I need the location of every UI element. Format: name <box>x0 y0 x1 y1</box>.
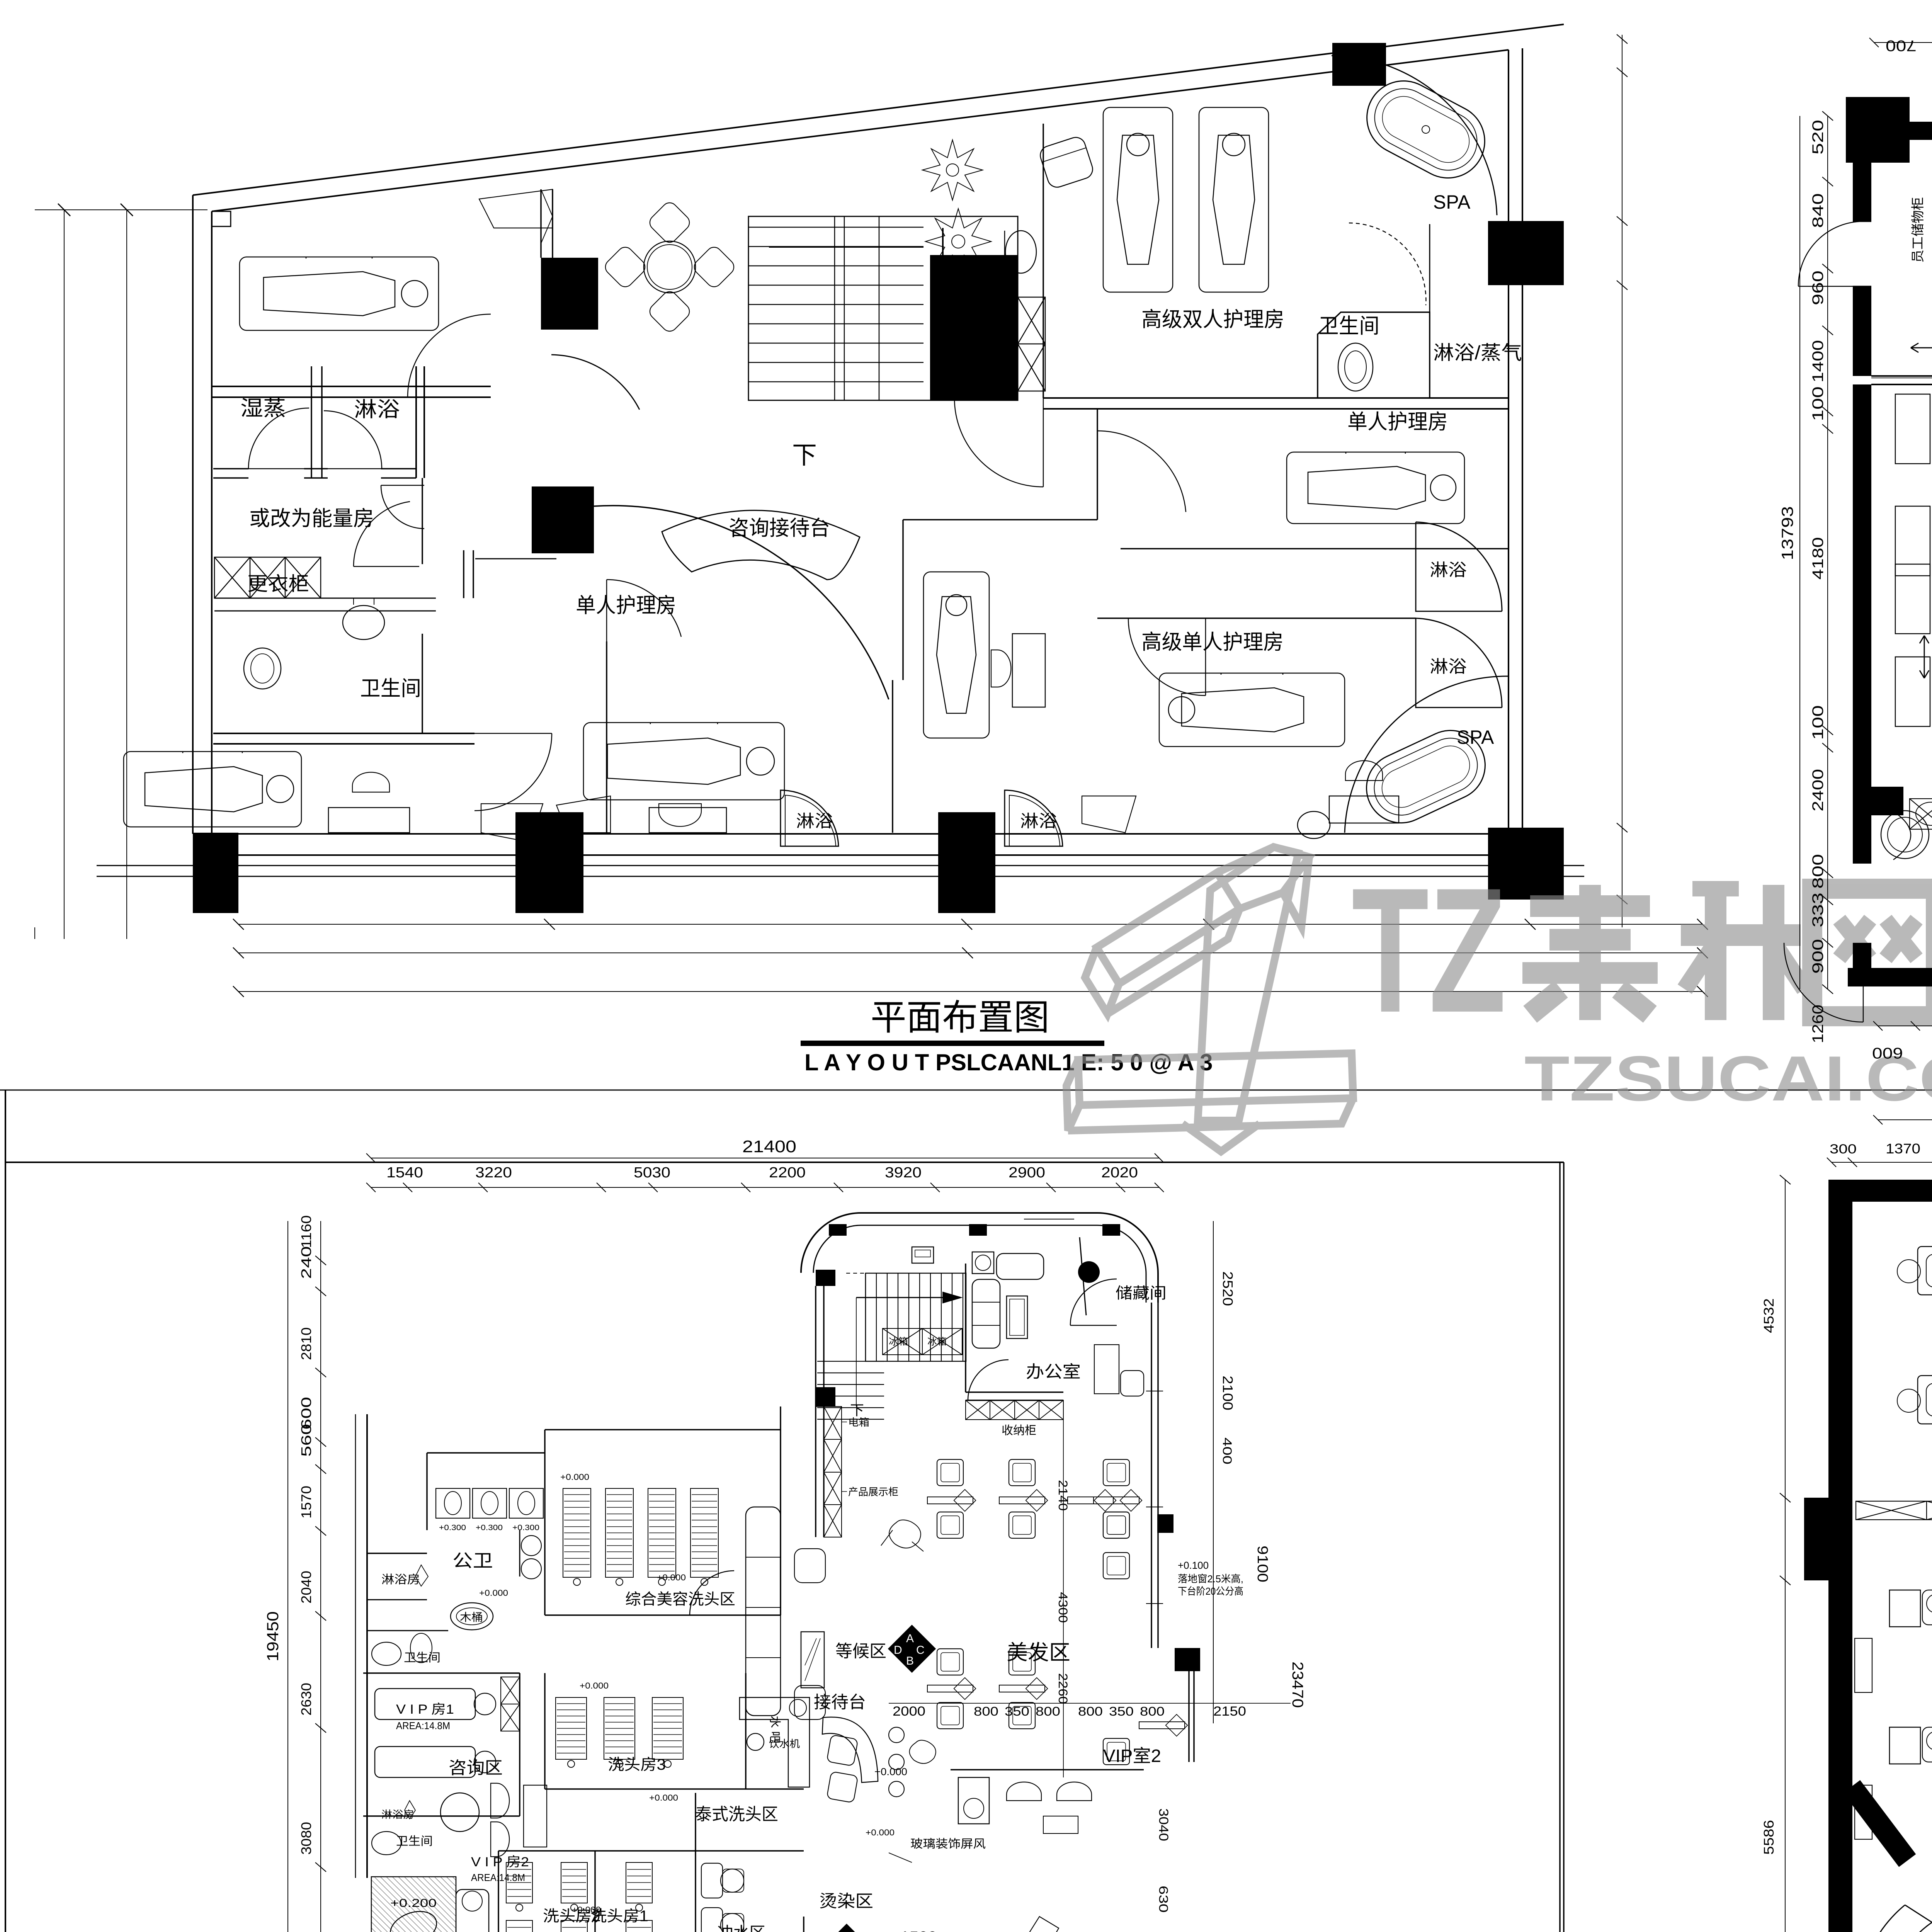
svg-text:3920: 3920 <box>885 1165 922 1181</box>
svg-text:700: 700 <box>1886 37 1917 54</box>
svg-text:淋浴房: 淋浴房 <box>381 1573 420 1586</box>
svg-text:泰式洗头区: 泰式洗头区 <box>695 1805 778 1824</box>
svg-text:淋浴: 淋浴 <box>1430 561 1467 580</box>
svg-text:350: 350 <box>1109 1704 1134 1718</box>
svg-text:350: 350 <box>1005 1704 1029 1718</box>
svg-text:+0.000: +0.000 <box>580 1681 609 1690</box>
svg-text:SPA: SPA <box>1457 726 1494 748</box>
svg-text:淋浴: 淋浴 <box>1430 657 1467 676</box>
svg-text:A: A <box>842 1930 849 1932</box>
svg-text:9100: 9100 <box>1254 1546 1270 1582</box>
svg-text:100: 100 <box>1810 705 1827 740</box>
svg-text:电箱: 电箱 <box>848 1417 869 1428</box>
svg-text:淋浴: 淋浴 <box>354 398 400 421</box>
svg-text:21400: 21400 <box>742 1137 796 1156</box>
svg-text:吧: 吧 <box>768 1731 781 1743</box>
svg-text:840: 840 <box>1810 193 1827 228</box>
svg-text:+0.300: +0.300 <box>512 1524 539 1532</box>
svg-text:或改为能量房: 或改为能量房 <box>249 507 374 530</box>
svg-text:下: 下 <box>792 441 817 469</box>
svg-text:5030: 5030 <box>634 1165 670 1181</box>
svg-text:木桶: 木桶 <box>460 1611 483 1623</box>
svg-text:2140: 2140 <box>1056 1480 1070 1511</box>
svg-text:520: 520 <box>1810 120 1827 155</box>
svg-text:2260: 2260 <box>1056 1673 1070 1704</box>
svg-text:下: 下 <box>850 1402 864 1418</box>
svg-text:3220: 3220 <box>475 1165 512 1181</box>
svg-text:2520: 2520 <box>1220 1271 1236 1306</box>
svg-text:水: 水 <box>768 1716 781 1728</box>
svg-text:1260: 1260 <box>1810 1005 1827 1043</box>
svg-text:2000: 2000 <box>893 1704 925 1719</box>
svg-text:2150: 2150 <box>1213 1704 1246 1719</box>
svg-text:2400: 2400 <box>1810 769 1827 811</box>
svg-text:下台阶20公分高: 下台阶20公分高 <box>1178 1585 1243 1597</box>
svg-text:2040: 2040 <box>298 1571 314 1604</box>
svg-text:100: 100 <box>1810 386 1827 421</box>
svg-text:淋浴: 淋浴 <box>796 812 833 831</box>
svg-text:+0.000: +0.000 <box>657 1573 686 1582</box>
svg-text:19450: 19450 <box>264 1611 282 1662</box>
svg-text:洗头房3: 洗头房3 <box>608 1756 666 1773</box>
svg-text:V I P 房1: V I P 房1 <box>396 1702 454 1717</box>
svg-text:产品展示柜: 产品展示柜 <box>848 1486 898 1498</box>
svg-text:5586: 5586 <box>1761 1820 1777 1855</box>
svg-text:卫生间: 卫生间 <box>404 1651 440 1664</box>
svg-text:接待台: 接待台 <box>814 1693 866 1712</box>
svg-text:员工储物柜: 员工储物柜 <box>1911 197 1925 263</box>
svg-text:2810: 2810 <box>298 1327 314 1360</box>
svg-text:4532: 4532 <box>1761 1298 1777 1333</box>
svg-text:综合美容洗头区: 综合美容洗头区 <box>625 1591 735 1608</box>
svg-text:400: 400 <box>1220 1437 1234 1464</box>
svg-text:560: 560 <box>298 1424 314 1457</box>
svg-text:13793: 13793 <box>1778 506 1796 560</box>
svg-text:1540: 1540 <box>386 1165 423 1181</box>
svg-text:D: D <box>894 1644 902 1656</box>
svg-text:23470: 23470 <box>1289 1662 1306 1708</box>
svg-text:2630: 2630 <box>298 1683 314 1716</box>
svg-text:冰箱: 冰箱 <box>927 1337 947 1347</box>
svg-text:咨询接待台: 咨询接待台 <box>729 517 830 540</box>
svg-text:800: 800 <box>1140 1704 1165 1718</box>
svg-text:办公室: 办公室 <box>1026 1362 1081 1381</box>
svg-text:C: C <box>916 1644 925 1656</box>
svg-text:等候区: 等候区 <box>835 1642 886 1661</box>
svg-text:630: 630 <box>1156 1886 1170 1913</box>
svg-text:+0.000: +0.000 <box>649 1793 678 1803</box>
svg-text:湿蒸: 湿蒸 <box>240 397 286 420</box>
svg-text:333: 333 <box>1810 893 1827 927</box>
svg-text:储藏间: 储藏间 <box>1116 1285 1167 1302</box>
svg-text:+0.100: +0.100 <box>1178 1560 1209 1571</box>
svg-text:更衣柜: 更衣柜 <box>247 573 309 595</box>
svg-text:TZSUCAI.COM: TZSUCAI.COM <box>1524 1043 1932 1114</box>
svg-text:+0.300: +0.300 <box>439 1524 466 1532</box>
svg-text:1160: 1160 <box>298 1215 314 1248</box>
svg-text:2900: 2900 <box>1009 1165 1045 1181</box>
svg-text:2100: 2100 <box>1220 1376 1236 1410</box>
svg-text:VIP室2: VIP室2 <box>1103 1746 1161 1766</box>
svg-text:800: 800 <box>1036 1704 1060 1718</box>
svg-text:900: 900 <box>1810 939 1827 974</box>
svg-text:2200: 2200 <box>769 1165 806 1181</box>
svg-text:冲水区: 冲水区 <box>717 1924 765 1932</box>
svg-text:800: 800 <box>1078 1704 1103 1718</box>
svg-text:玻璃装饰屏风: 玻璃装饰屏风 <box>910 1838 986 1850</box>
svg-text:高级双人护理房: 高级双人护理房 <box>1141 308 1284 331</box>
svg-text:2020: 2020 <box>1101 1165 1138 1181</box>
svg-text:4300: 4300 <box>1056 1592 1070 1623</box>
svg-text:300: 300 <box>1830 1142 1857 1156</box>
svg-text:TZ: TZ <box>1352 851 1506 1049</box>
svg-text:平面布置图: 平面布置图 <box>871 998 1049 1037</box>
svg-text:淋浴: 淋浴 <box>1020 812 1057 831</box>
svg-text:卫生间: 卫生间 <box>396 1835 433 1848</box>
svg-text:单人护理房: 单人护理房 <box>576 594 676 617</box>
svg-text:+0.000: +0.000 <box>866 1828 895 1837</box>
svg-text:A: A <box>906 1632 914 1645</box>
svg-text:1400: 1400 <box>1810 340 1827 383</box>
svg-text:咨询区: 咨询区 <box>449 1759 503 1777</box>
svg-text:1370: 1370 <box>1886 1141 1920 1156</box>
svg-text:SPA: SPA <box>1433 191 1471 213</box>
svg-text:收纳柜: 收纳柜 <box>1002 1424 1036 1437</box>
svg-text:冰箱: 冰箱 <box>889 1337 908 1347</box>
svg-text:L A Y O U T PSLCAANL1 E: 5: L A Y O U T PSLCAANL1 E: 5 0 @ A 3 <box>804 1049 1213 1075</box>
svg-text:+0.300: +0.300 <box>476 1524 503 1532</box>
svg-text:卫生间: 卫生间 <box>360 677 421 700</box>
svg-text:1570: 1570 <box>298 1486 314 1519</box>
svg-text:4180: 4180 <box>1810 537 1827 580</box>
svg-text:800: 800 <box>974 1704 998 1718</box>
svg-text:卫生间: 卫生间 <box>1318 315 1379 338</box>
svg-text:800: 800 <box>1810 854 1827 889</box>
svg-text:240: 240 <box>298 1246 314 1279</box>
svg-text:公卫: 公卫 <box>452 1551 493 1571</box>
svg-text:单人护理房: 单人护理房 <box>1347 410 1448 434</box>
svg-text:960: 960 <box>1810 270 1827 305</box>
svg-text:高级单人护理房: 高级单人护理房 <box>1141 631 1284 654</box>
svg-text:烫染区: 烫染区 <box>819 1892 873 1911</box>
svg-text:+0.000: +0.000 <box>560 1472 589 1482</box>
svg-text:淋浴/蒸气: 淋浴/蒸气 <box>1433 342 1522 364</box>
svg-text:3080: 3080 <box>298 1822 314 1855</box>
svg-text:600: 600 <box>1872 1044 1903 1061</box>
svg-text:1500: 1500 <box>900 1929 937 1932</box>
svg-text:+0.200: +0.200 <box>390 1897 437 1910</box>
svg-text:AREA:14.8M: AREA:14.8M <box>396 1720 450 1731</box>
svg-text:+0.000: +0.000 <box>572 1905 601 1915</box>
svg-text:3040: 3040 <box>1156 1808 1171 1841</box>
svg-text:落地窗2.5米高,: 落地窗2.5米高, <box>1178 1573 1243 1585</box>
svg-text:B: B <box>906 1655 914 1667</box>
svg-text:+0.000: +0.000 <box>479 1588 508 1598</box>
